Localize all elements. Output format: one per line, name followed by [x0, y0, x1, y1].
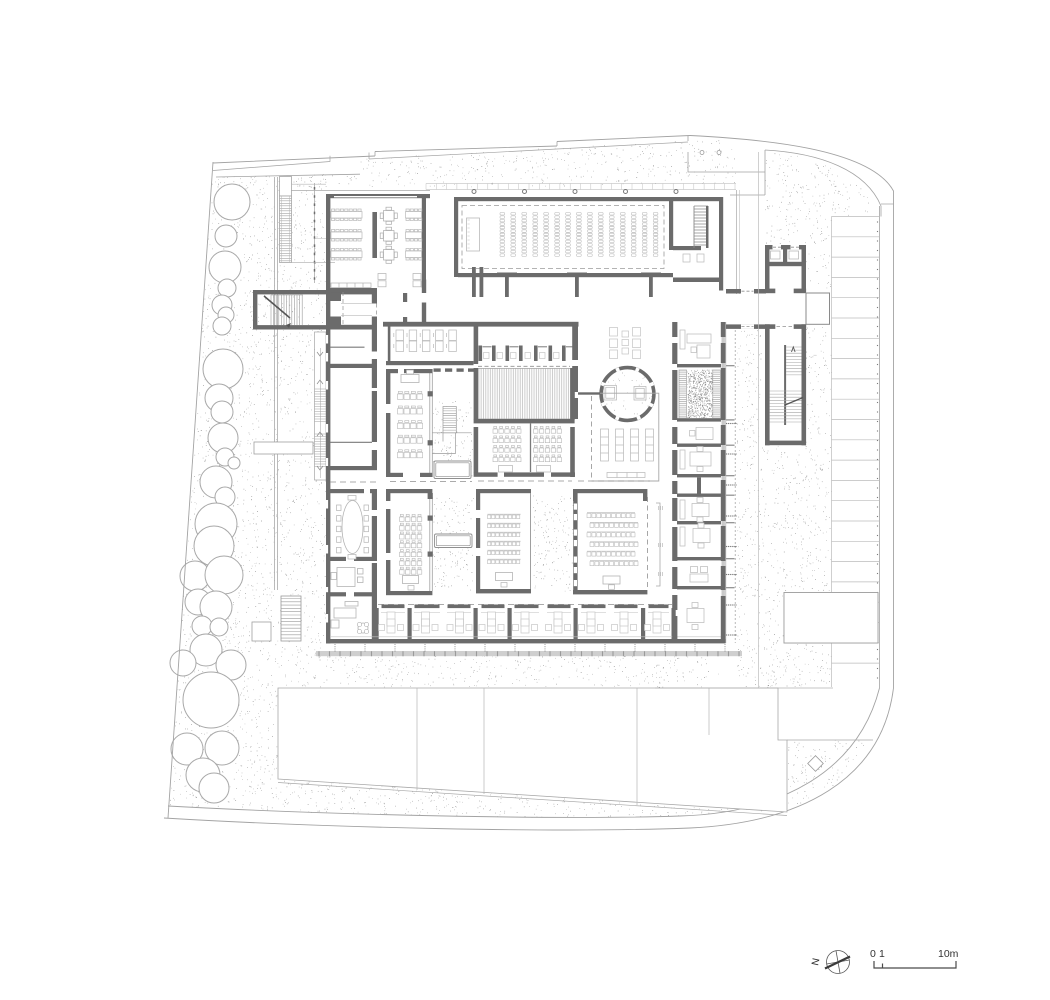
svg-text:1: 1 — [879, 948, 885, 960]
svg-text:0: 0 — [870, 948, 876, 960]
svg-text:10m: 10m — [938, 948, 959, 960]
